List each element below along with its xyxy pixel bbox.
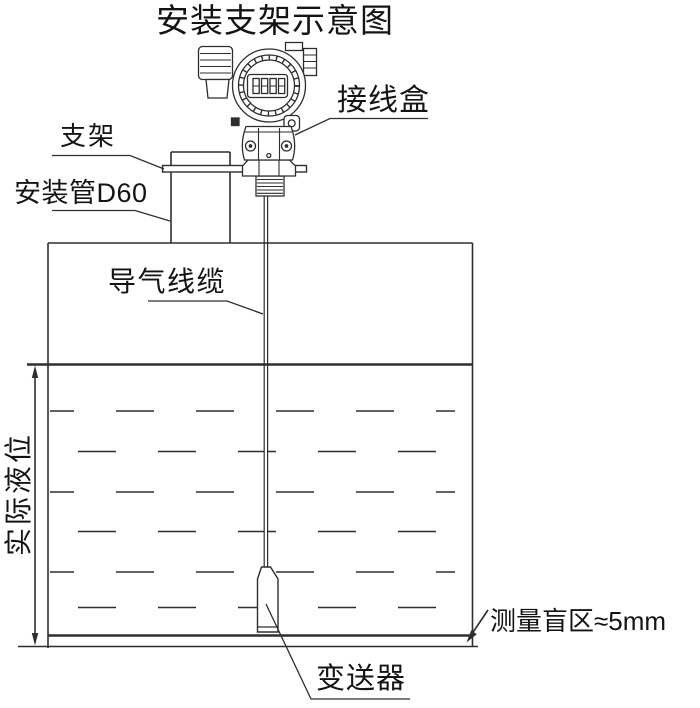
top-tab [286,43,303,51]
housing-bolt-left [232,118,240,126]
page-title: 安装支架示意图 [156,4,394,37]
label-bracket: 支架 [60,123,116,149]
side-port-icon [304,49,317,76]
transmitter-head [199,43,317,161]
leader-mounting-pipe [52,211,170,222]
tank [18,243,478,648]
threaded-stud [256,176,284,196]
leader-junction-box [295,119,428,136]
air-guide-cable [264,196,267,573]
cable-gland-icon [199,47,233,99]
blind-zone-arrow-icon [467,610,489,643]
label-junction-box: 接线盒 [337,86,430,116]
label-blind-zone: 测量盲区≈5mm [490,608,666,634]
schematic-page: 安装支架示意图 接线盒 支架 安装管D60 导气线缆 实际液位 测量盲区≈5mm… [0,0,700,708]
hex-nut [243,160,296,176]
leader-air-cable [148,301,263,314]
label-mounting-pipe: 安装管D60 [14,180,148,207]
liquid-dashes [50,411,455,608]
label-actual-level: 实际液位 [5,427,33,561]
label-transmitter: 变送器 [316,665,406,694]
label-air-cable: 导气线缆 [108,268,226,296]
neck-flange [242,127,294,161]
leader-bracket [52,156,164,170]
lcd-display [248,75,288,98]
